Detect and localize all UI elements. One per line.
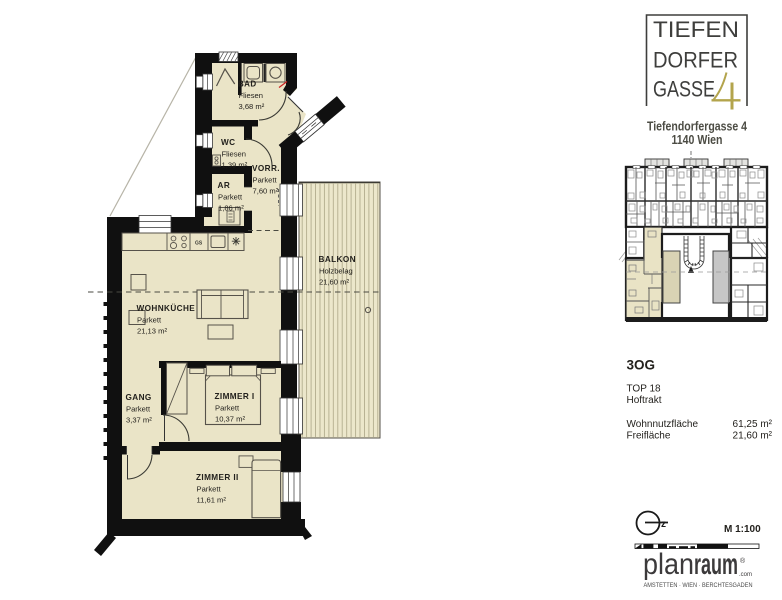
svg-text:21,13 m²: 21,13 m² [137,327,167,336]
svg-text:10,37 m²: 10,37 m² [215,415,245,424]
svg-text:WC: WC [221,138,235,147]
svg-text:1140 Wien: 1140 Wien [672,132,723,147]
svg-text:GS: GS [195,241,203,247]
svg-text:7,60 m²: 7,60 m² [253,187,279,196]
svg-text:AMSTETTEN · WIEN · BERCHTESGAD: AMSTETTEN · WIEN · BERCHTESGADEN [644,582,753,589]
svg-text:21,60 m²: 21,60 m² [733,431,773,442]
svg-text:61,25 m²: 61,25 m² [733,419,773,430]
svg-text:Parkett: Parkett [218,193,243,202]
svg-text:plan: plan [643,548,694,581]
svg-text:VORR.: VORR. [252,164,280,173]
svg-text:1,86 m²: 1,86 m² [218,204,244,213]
svg-text:Holzbelag: Holzbelag [319,267,353,276]
svg-text:TOP 18: TOP 18 [627,384,662,395]
svg-text:Wohnnutzfläche: Wohnnutzfläche [627,419,699,430]
svg-text:Parkett: Parkett [137,316,162,325]
svg-text:GANG: GANG [126,393,152,402]
svg-text:3OG: 3OG [627,358,656,373]
svg-text:ZIMMER II: ZIMMER II [196,473,239,482]
svg-text:Parkett: Parkett [215,404,240,413]
svg-text:Freifläche: Freifläche [627,431,671,442]
svg-text:21,60 m²: 21,60 m² [319,278,349,287]
svg-text:AR: AR [218,181,231,190]
svg-text:BALKON: BALKON [319,255,356,264]
svg-text:Fliesen: Fliesen [222,150,246,159]
svg-text:WOHNKÜCHE: WOHNKÜCHE [137,303,196,313]
svg-text:DORFER: DORFER [653,48,738,73]
svg-text:raum: raum [694,548,738,581]
svg-text:Fliesen: Fliesen [239,91,263,100]
svg-text:3,68 m²: 3,68 m² [239,102,265,111]
svg-text:®: ® [740,557,746,565]
svg-text:Parkett: Parkett [126,405,151,414]
svg-text:3,37 m²: 3,37 m² [126,416,152,425]
svg-text:.com: .com [739,572,752,578]
svg-text:Parkett: Parkett [253,176,278,185]
svg-text:z: z [661,519,666,530]
svg-text:ZIMMER I: ZIMMER I [215,392,255,401]
svg-text:11,61 m²: 11,61 m² [197,496,227,505]
svg-text:M 1:100: M 1:100 [724,524,761,535]
svg-text:Parkett: Parkett [197,485,222,494]
svg-text:Hoftrakt: Hoftrakt [627,395,662,406]
svg-text:BAD: BAD [238,80,257,89]
svg-text:1,39 m²: 1,39 m² [222,161,248,170]
svg-text:TIEFEN: TIEFEN [653,17,739,42]
svg-text:GASSE: GASSE [653,77,715,102]
